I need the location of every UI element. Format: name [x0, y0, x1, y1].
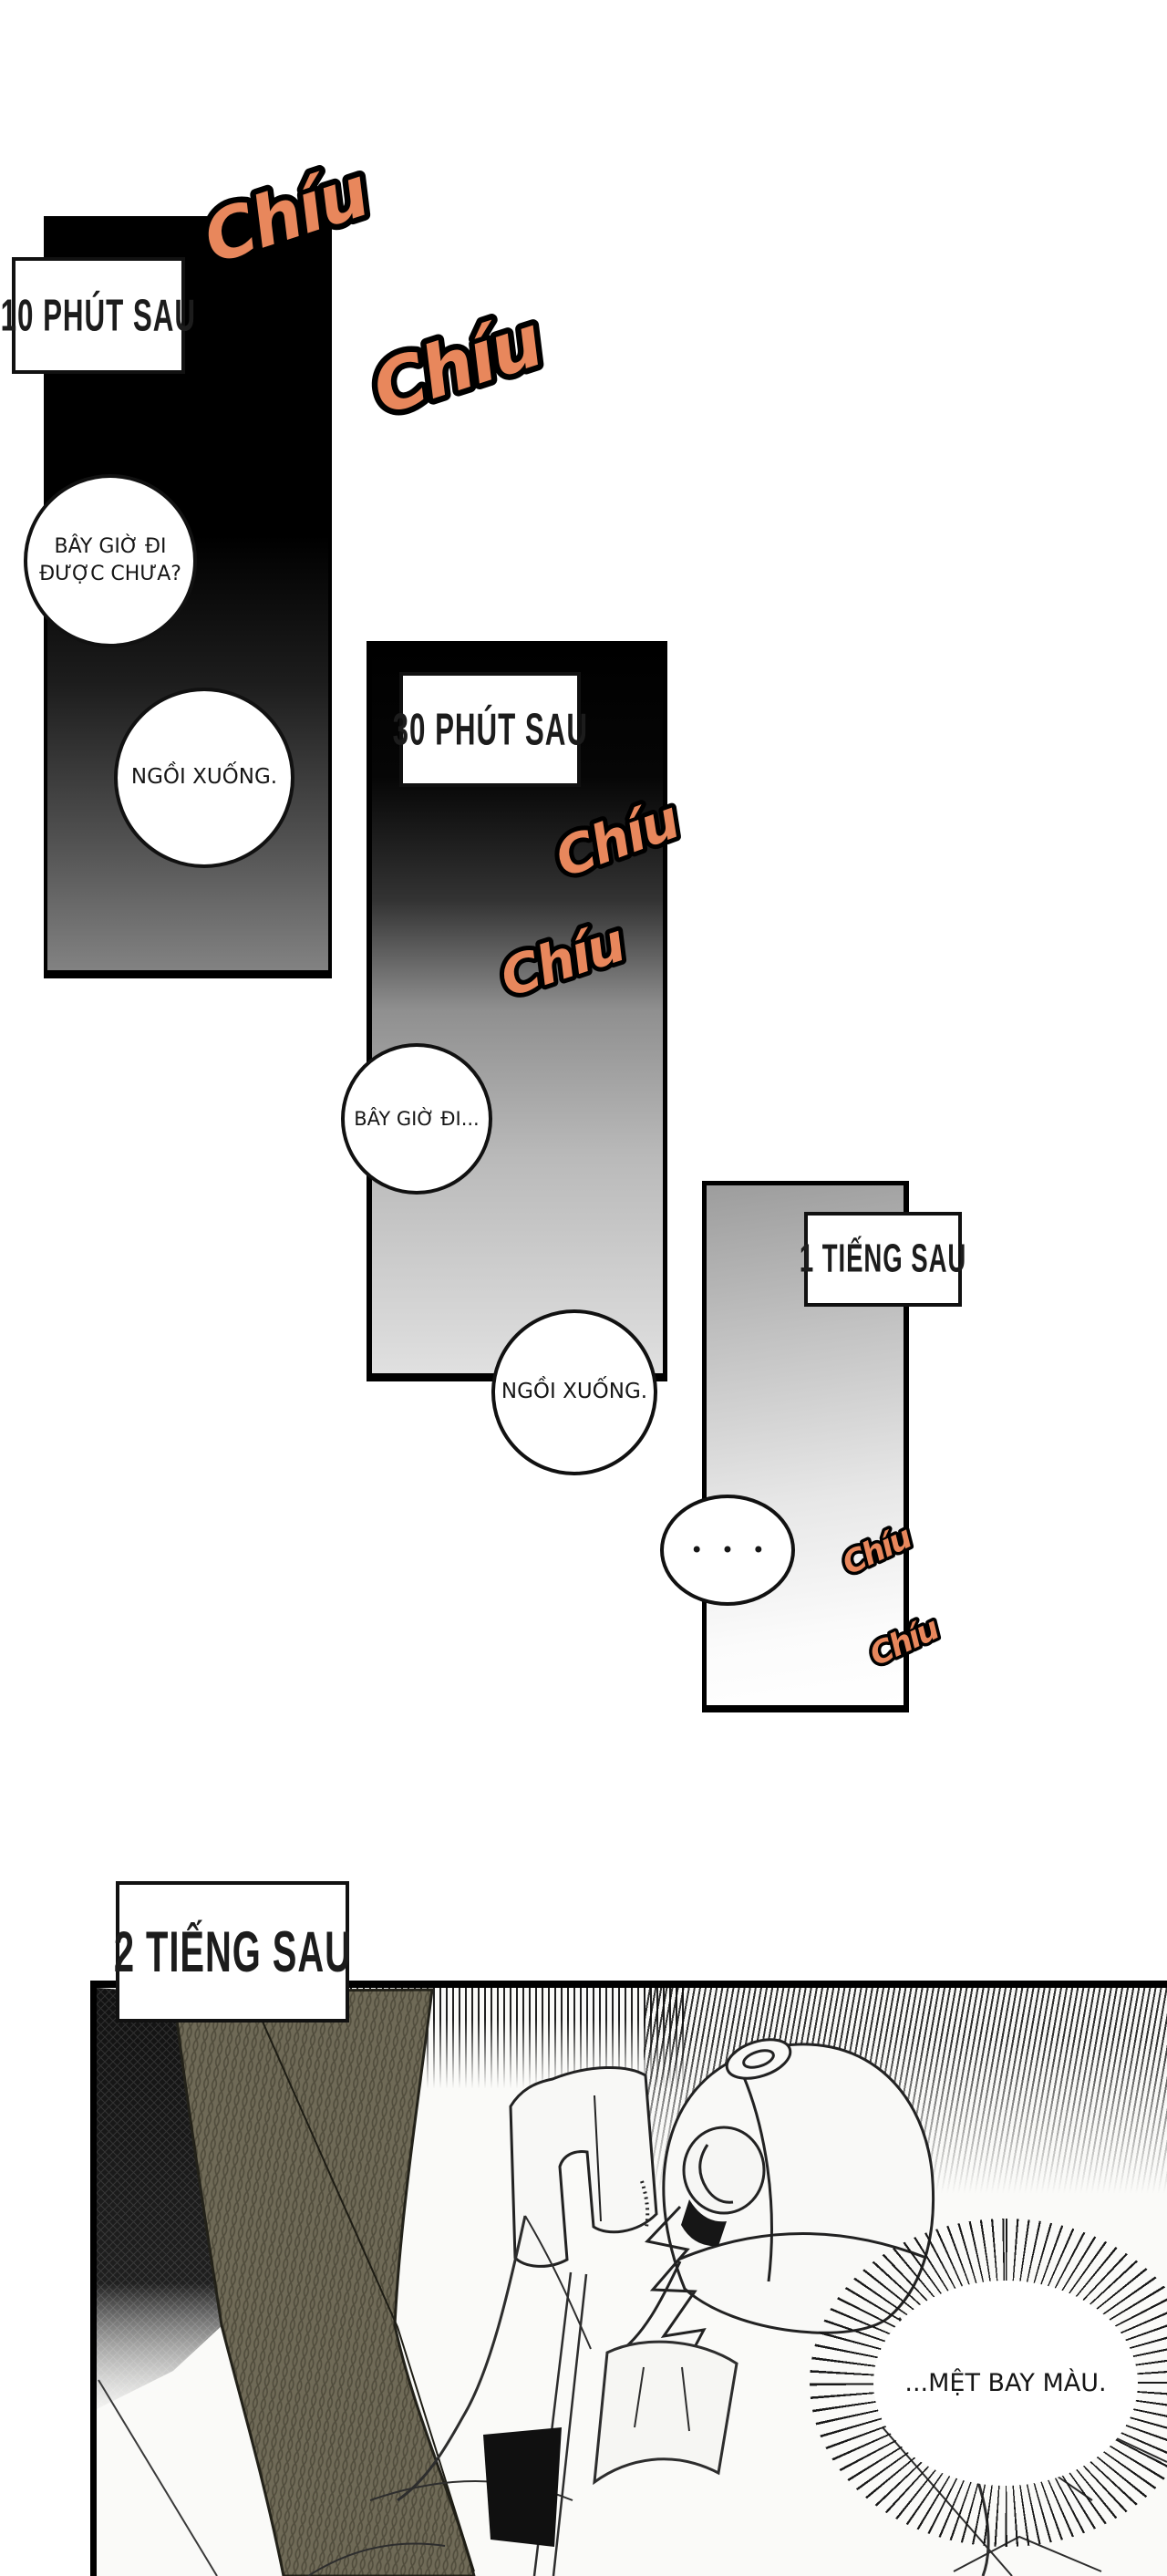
speech-bubble-tired: ...MỆT BAY MÀU. — [873, 2281, 1138, 2486]
comic-page: ...MỆT BAY MÀU. BÂY GIỜ ĐI ĐƯỢC CHƯA? NG… — [0, 0, 1167, 2576]
dark-garment-patch — [483, 2427, 562, 2547]
speech-text: NGỒI XUỐNG. — [501, 1378, 647, 1406]
speech-bubble-sit-down-2: NGỒI XUỐNG. — [491, 1309, 657, 1475]
towel — [511, 2067, 656, 2266]
time-label-text: 30 PHÚT SAU — [392, 704, 587, 756]
speech-line-1: BÂY GIỜ ĐI — [54, 535, 166, 558]
speech-text: NGỒI XUỐNG. — [131, 763, 277, 791]
time-label-text: 1 TIẾNG SAU — [800, 1236, 966, 1282]
speech-text: ...MỆT BAY MÀU. — [904, 2369, 1106, 2397]
time-label-10-minutes: 10 PHÚT SAU — [12, 257, 185, 374]
knit-band — [173, 1990, 474, 2576]
time-label-2-hours: 2 TIẾNG SAU — [116, 1881, 349, 2023]
sfx-chiu-2: Chíu — [313, 271, 604, 471]
fold-line — [98, 2380, 217, 2576]
speech-bubble-ellipsis: • • • — [660, 1495, 795, 1606]
time-label-text: 10 PHÚT SAU — [1, 290, 196, 342]
speech-text: BÂY GIỜ ĐI... — [354, 1106, 479, 1132]
speech-text: BÂY GIỜ ĐI ĐƯỢC CHƯA? — [39, 533, 181, 587]
sfx-text: Chíu — [363, 300, 551, 431]
time-label-text: 2 TIẾNG SAU — [114, 1919, 352, 1985]
time-label-1-hour: 1 TIẾNG SAU — [804, 1212, 962, 1307]
speech-bubble-can-we-go-2: BÂY GIỜ ĐI... — [341, 1043, 492, 1195]
speech-line-2: ĐƯỢC CHƯA? — [39, 563, 181, 585]
speech-text: • • • — [690, 1536, 770, 1565]
time-label-30-minutes: 30 PHÚT SAU — [399, 672, 581, 787]
speech-bubble-sit-down-1: NGỒI XUỐNG. — [114, 688, 294, 868]
panel-2-hours: ...MỆT BAY MÀU. — [90, 1981, 1167, 2576]
speech-bubble-can-we-go: BÂY GIỜ ĐI ĐƯỢC CHƯA? — [24, 474, 197, 647]
